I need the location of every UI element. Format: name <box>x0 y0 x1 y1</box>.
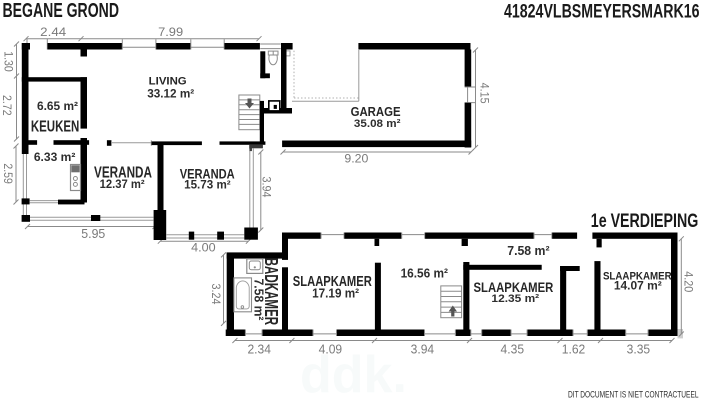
svg-text:3.94: 3.94 <box>411 341 435 356</box>
svg-text:5.95: 5.95 <box>81 227 105 241</box>
svg-text:ddk.: ddk. <box>300 346 407 402</box>
svg-text:41824VLBSMEYERSMARK16: 41824VLBSMEYERSMARK16 <box>504 0 700 22</box>
svg-text:15.73 m²: 15.73 m² <box>184 179 231 191</box>
svg-text:4.15: 4.15 <box>478 83 492 104</box>
svg-text:35.08 m²: 35.08 m² <box>354 118 401 130</box>
svg-text:4.35: 4.35 <box>501 341 525 356</box>
svg-text:14.07 m²: 14.07 m² <box>614 279 662 293</box>
svg-text:12.35 m²: 12.35 m² <box>491 293 539 305</box>
svg-text:DIT DOCUMENT IS NIET CONTRACTU: DIT DOCUMENT IS NIET CONTRACTUEEL <box>568 389 699 399</box>
svg-text:12.37 m²: 12.37 m² <box>100 177 145 191</box>
svg-text:7.58 m²: 7.58 m² <box>507 243 550 258</box>
svg-text:2.44: 2.44 <box>40 25 66 39</box>
svg-text:BEGANE GROND: BEGANE GROND <box>3 0 120 22</box>
svg-text:33.12 m²: 33.12 m² <box>147 87 194 101</box>
svg-text:9.20: 9.20 <box>344 154 368 166</box>
svg-text:2.59: 2.59 <box>1 163 15 184</box>
svg-text:3.24: 3.24 <box>209 284 223 305</box>
svg-text:6.65 m²: 6.65 m² <box>37 99 78 113</box>
svg-text:3.35: 3.35 <box>627 341 651 356</box>
svg-text:2.34: 2.34 <box>247 341 271 356</box>
svg-text:7.58 m²: 7.58 m² <box>252 279 267 322</box>
svg-text:3.94: 3.94 <box>259 177 273 198</box>
svg-text:2.72: 2.72 <box>0 95 14 116</box>
svg-text:1.62: 1.62 <box>562 341 586 356</box>
svg-text:1.30: 1.30 <box>2 51 16 72</box>
svg-text:17.19 m²: 17.19 m² <box>312 285 360 300</box>
svg-text:KEUKEN: KEUKEN <box>31 118 80 135</box>
svg-text:4.09: 4.09 <box>319 341 343 356</box>
svg-text:6.33 m²: 6.33 m² <box>34 150 76 164</box>
svg-text:7.99: 7.99 <box>158 25 183 39</box>
svg-text:1e VERDIEPING: 1e VERDIEPING <box>591 210 699 232</box>
svg-text:4.00: 4.00 <box>191 241 216 255</box>
svg-text:16.56 m²: 16.56 m² <box>401 266 449 281</box>
svg-text:4.20: 4.20 <box>681 271 695 292</box>
